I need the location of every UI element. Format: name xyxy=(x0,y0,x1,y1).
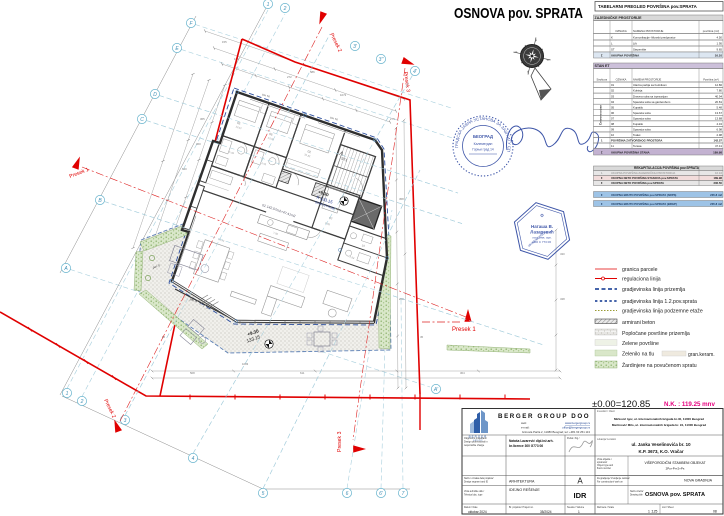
svg-text:C: C xyxy=(140,117,144,123)
svg-text:Spavaća soba: Spavaća soba xyxy=(633,116,651,120)
svg-text:gradjevinska linija prizemlja: gradjevinska linija prizemlja xyxy=(622,287,685,293)
svg-text:16.10: 16.10 xyxy=(715,171,722,175)
svg-text:IDEJNO REŠENJE: IDEJNO REŠENJE xyxy=(509,487,540,492)
svg-text:POVRŠINA ZATVORENOG PROSTORA: POVRŠINA ZATVORENOG PROSTORA xyxy=(611,138,662,143)
svg-text:01: 01 xyxy=(611,83,615,87)
svg-text:13.67: 13.67 xyxy=(715,111,722,115)
svg-text:UKUPNA POVRŠINA ZAJEDNIČKIH PR: UKUPNA POVRŠINA ZAJEDNIČKIH PROSTORIJA xyxy=(611,170,675,175)
svg-text:Naziv crteža/: Naziv crteža/ xyxy=(630,490,644,493)
svg-text:1: 1 xyxy=(66,391,69,397)
svg-text:REKAPITULACIJA POVRŠINA pov.SP: REKAPITULACIJA POVRŠINA pov.SPRATA xyxy=(634,165,700,170)
svg-text:Struktura: Struktura xyxy=(596,78,607,82)
svg-text:640: 640 xyxy=(182,167,187,171)
svg-text:1.95: 1.95 xyxy=(717,42,723,46)
svg-text:Četvorosoban: Četvorosoban xyxy=(598,105,603,125)
svg-text:A: A xyxy=(63,266,68,272)
svg-text:Spavaća soba: Spavaća soba xyxy=(633,128,651,132)
svg-text:6: 6 xyxy=(346,491,349,497)
svg-text:Pečat i žig /: Pečat i žig / xyxy=(567,437,580,440)
svg-text:1: 1 xyxy=(578,510,580,514)
svg-text:oktobar 2024: oktobar 2024 xyxy=(468,510,487,514)
svg-text:508: 508 xyxy=(190,371,195,375)
svg-text:ST: ST xyxy=(611,48,615,52)
svg-text:UKUPNA BRUTO POVRŠINA pov.SPRA: UKUPNA BRUTO POVRŠINA pov.SPRATA (BRGP) xyxy=(611,201,677,206)
svg-text:04: 04 xyxy=(611,100,615,104)
svg-text:Presek 3: Presek 3 xyxy=(337,431,343,452)
svg-text:2.98: 2.98 xyxy=(717,133,723,137)
svg-text:7: 7 xyxy=(402,491,405,497)
svg-text:09: 09 xyxy=(611,128,615,132)
svg-text:Vrsta objekta i: Vrsta objekta i xyxy=(597,458,612,461)
svg-text:Kupatilo: Kupatilo xyxy=(633,105,644,109)
svg-text:NAMENA PROSTORIJE: NAMENA PROSTORIJE xyxy=(633,78,661,82)
svg-text:ARHITEKTURA: ARHITEKTURA xyxy=(509,480,535,484)
svg-text:Nataša Lazarević dipl.inž.ar: Nataša Lazarević dipl.inž.arh. xyxy=(509,439,554,443)
svg-text:ZAJEDNIČKE PROSTORIJE: ZAJEDNIČKE PROSTORIJE xyxy=(595,15,643,20)
svg-text:OZNAKA: OZNAKA xyxy=(616,78,627,82)
svg-text:Komunikacije -liftovski predpr: Komunikacije -liftovski predprostor xyxy=(633,36,676,40)
svg-text:regulaciona linija: regulaciona linija xyxy=(622,277,661,283)
svg-text:10: 10 xyxy=(611,133,615,137)
svg-text:spratnost/: spratnost/ xyxy=(597,461,607,464)
svg-text:granica parcele: granica parcele xyxy=(622,267,658,273)
svg-text:Sveska / Volume: Sveska / Volume xyxy=(567,507,585,509)
svg-text:35/2024: 35/2024 xyxy=(540,510,552,514)
svg-text:11: 11 xyxy=(611,144,614,148)
svg-text:Калемегдан: Калемегдан xyxy=(474,142,493,146)
svg-text:UKUPNA POVRŠINA STANA: UKUPNA POVRŠINA STANA xyxy=(611,150,651,155)
svg-text:189.98: 189.98 xyxy=(713,151,722,155)
svg-text:1: 1 xyxy=(601,139,603,143)
svg-text:БЕОГРАД: БЕОГРАД xyxy=(473,134,493,139)
svg-text:07: 07 xyxy=(611,116,615,120)
svg-text:Površina (m²): Površina (m²) xyxy=(703,78,719,82)
svg-text:9.65: 9.65 xyxy=(717,48,723,52)
svg-text:UKUPNA NETO POVRŠINA STANOVA p: UKUPNA NETO POVRŠINA STANOVA pov.SPRATA xyxy=(611,175,678,180)
svg-text:Ulazna partija sa hodnikom: Ulazna partija sa hodnikom xyxy=(633,83,667,87)
svg-text:UKUPNA BRUTO POVRŠINA pov.SPRA: UKUPNA BRUTO POVRŠINA pov.SPRATA (SRPS) xyxy=(611,192,676,197)
svg-text:Presek 2: Presek 2 xyxy=(102,398,116,419)
svg-text:površina (m²): površina (m²) xyxy=(703,29,720,33)
svg-text:365: 365 xyxy=(200,117,205,121)
svg-text:12.80: 12.80 xyxy=(715,83,722,87)
svg-text:08: 08 xyxy=(713,510,717,514)
svg-text:BERGER GROUP DOO: BERGER GROUP DOO xyxy=(498,413,590,420)
svg-text:Žardinjere na povučenom spratu: Žardinjere na povučenom spratu xyxy=(622,361,697,369)
svg-text:Dnevna soba sa trpezarijom: Dnevna soba sa trpezarijom xyxy=(633,94,668,98)
svg-text:OZNAKA: OZNAKA xyxy=(615,29,627,33)
svg-text:Investitor / Client: Investitor / Client xyxy=(597,410,615,413)
svg-text:2Po+Pr+2+Ps: 2Po+Pr+2+Ps xyxy=(666,467,685,471)
svg-text:Br. projekta / Project no.: Br. projekta / Project no. xyxy=(509,506,534,509)
svg-text:1 :125: 1 :125 xyxy=(648,510,658,514)
svg-text:Presek 2: Presek 2 xyxy=(328,32,342,53)
svg-text:⚙: ⚙ xyxy=(540,213,545,218)
svg-text:02: 02 xyxy=(611,89,615,93)
svg-text:IDR: IDR xyxy=(574,491,588,500)
svg-text:Presek 1: Presek 1 xyxy=(452,327,476,333)
svg-text:5: 5 xyxy=(262,491,265,497)
svg-text:Tehnical doc. type: Tehnical doc. type xyxy=(464,494,483,497)
svg-text:438: 438 xyxy=(560,297,565,301)
svg-text:www.bergergroup.rs: www.bergergroup.rs xyxy=(565,421,591,425)
svg-text:235.8 m2: 235.8 m2 xyxy=(710,193,722,197)
svg-text:Popločane površine prizemlja: Popločane površine prizemlja xyxy=(622,331,690,337)
svg-text:45: 45 xyxy=(420,335,424,339)
svg-text:6.98: 6.98 xyxy=(717,128,723,132)
svg-text:Zelene površine: Zelene površine xyxy=(622,341,659,347)
svg-text:Naziv i oznaka dela projekta/: Naziv i oznaka dela projekta/ xyxy=(464,477,494,480)
svg-text:List / Sheet: List / Sheet xyxy=(662,506,674,509)
svg-text:Stepenište: Stepenište xyxy=(633,48,647,52)
svg-text:1072: 1072 xyxy=(340,93,347,97)
svg-text:gradjevinska linija 1.2.pov.sp: gradjevinska linija 1.2.pov.sprata xyxy=(622,299,697,305)
svg-text:Object type and: Object type and xyxy=(597,464,614,467)
svg-text:3: 3 xyxy=(124,418,127,424)
svg-text:611: 611 xyxy=(300,371,305,375)
svg-text:155: 155 xyxy=(222,40,227,44)
svg-text:Terasa: Terasa xyxy=(633,144,642,148)
svg-text:responsible charge: responsible charge xyxy=(464,444,485,447)
svg-text:586: 586 xyxy=(310,70,315,74)
svg-text:4: 4 xyxy=(192,456,195,462)
svg-text:office@bergergroup.rs: office@bergergroup.rs xyxy=(562,426,590,430)
svg-text:Mirković Igor, ul. Internacion: Mirković Igor, ul. Internacionalnih brig… xyxy=(614,417,704,421)
svg-text:235.8 m2: 235.8 m2 xyxy=(710,202,722,206)
svg-text:2: 2 xyxy=(80,399,84,405)
svg-text:Spavaća soba: Spavaća soba xyxy=(633,111,651,115)
svg-text:Kuhinja: Kuhinja xyxy=(633,89,643,93)
svg-text:142.57: 142.57 xyxy=(713,139,722,143)
svg-text:Martinović Milo, ul. internaci: Martinović Milo, ul. internacionalnih br… xyxy=(612,423,706,427)
svg-text:Datum / Date: Datum / Date xyxy=(464,506,478,509)
svg-text:web:: web: xyxy=(521,421,527,425)
svg-text:05: 05 xyxy=(611,105,615,109)
svg-text:360: 360 xyxy=(196,142,201,146)
svg-text:Lokacija/ Location: Lokacija/ Location xyxy=(597,438,617,441)
svg-text:206.50: 206.50 xyxy=(713,181,722,185)
svg-text:7.80: 7.80 xyxy=(717,89,723,93)
svg-text:D: D xyxy=(153,92,157,98)
svg-text:20.81: 20.81 xyxy=(715,100,722,104)
svg-text:UKUPNA POVRŠINA: UKUPNA POVRŠINA xyxy=(611,53,640,58)
svg-text:Zelenilo na tlu: Zelenilo na tlu xyxy=(622,352,654,358)
svg-text:Toalet: Toalet xyxy=(633,133,641,137)
svg-text:4.50: 4.50 xyxy=(717,36,723,40)
svg-text:Vrsta tehničke dok./: Vrsta tehničke dok./ xyxy=(464,490,484,493)
svg-text:par. 50: par. 50 xyxy=(262,92,271,99)
svg-text:272: 272 xyxy=(287,75,292,79)
svg-text:K: K xyxy=(611,36,613,40)
svg-text:N.K. : 119.25 mnv: N.K. : 119.25 mnv xyxy=(664,401,715,408)
svg-text:430: 430 xyxy=(560,252,565,256)
svg-text:STAN ET: STAN ET xyxy=(595,64,611,68)
svg-text:Lift: Lift xyxy=(633,42,637,46)
svg-text:1: 1 xyxy=(267,2,270,8)
svg-text:A: A xyxy=(577,477,583,486)
svg-text:par. 50: par. 50 xyxy=(330,115,339,122)
svg-text:br.licence 300 G773 06: br.licence 300 G773 06 xyxy=(509,444,543,448)
svg-text:16.10: 16.10 xyxy=(715,54,723,58)
svg-text:armirani beton: armirani beton xyxy=(622,320,655,326)
svg-text:Наташа В.: Наташа В. xyxy=(531,224,553,229)
svg-text:458: 458 xyxy=(399,197,404,201)
svg-text:03: 03 xyxy=(611,94,615,98)
svg-text:floors number: floors number xyxy=(597,467,611,470)
svg-text:47.41: 47.41 xyxy=(715,144,722,148)
svg-text:Grincela Parila 2, 11080 Beogr: Grincela Parila 2, 11080 Beograd; tel: +… xyxy=(522,430,591,434)
svg-text:e-mail:: e-mail: xyxy=(521,426,530,430)
svg-text:gradjevinska linija podzemne e: gradjevinska linija podzemne etaže xyxy=(622,309,703,315)
svg-text:1083: 1083 xyxy=(242,362,249,366)
svg-text:189.98: 189.98 xyxy=(713,176,722,180)
svg-text:OSNOVA pov. SPRATA: OSNOVA pov. SPRATA xyxy=(645,492,705,498)
svg-text:Razmera / Scale: Razmera / Scale xyxy=(597,506,615,509)
svg-text:Design segment and ID: Design segment and ID xyxy=(464,481,488,484)
svg-text:For construction/ work on: For construction/ work on xyxy=(597,481,624,484)
svg-text:gran.keram.: gran.keram. xyxy=(688,352,715,358)
svg-text:275: 275 xyxy=(390,117,395,121)
svg-text:06: 06 xyxy=(611,111,615,115)
svg-text:L: L xyxy=(611,42,613,46)
svg-text:VIŠEPORODIČNI STAMBENI OBJEKAT: VIŠEPORODIČNI STAMBENI OBJEKAT xyxy=(644,460,705,465)
svg-text:Σ: Σ xyxy=(601,151,603,155)
svg-text:2: 2 xyxy=(283,6,287,12)
svg-text:40.94: 40.94 xyxy=(715,94,722,98)
svg-text:TABELARNI PREGLED POVRŠINA pov: TABELARNI PREGLED POVRŠINA pov.SPRATA xyxy=(598,4,698,9)
svg-text:Za gradjenje/ izvodjenje radov: Za gradjenje/ izvodjenje radova/ xyxy=(597,477,630,480)
svg-text:Presek 3: Presek 3 xyxy=(402,71,411,92)
svg-text:UKUPNA NETO POVRŠINA pov.SPRAT: UKUPNA NETO POVRŠINA pov.SPRATA xyxy=(611,180,664,185)
svg-text:OSNOVA pov. SPRATA: OSNOVA pov. SPRATA xyxy=(454,6,583,22)
svg-text:Σ: Σ xyxy=(601,54,603,58)
svg-text:Spavaća soba sa garderobom: Spavaća soba sa garderobom xyxy=(633,100,671,104)
svg-text:NAMENA PROSTORIJE: NAMENA PROSTORIJE xyxy=(633,29,664,33)
svg-text:4.43: 4.43 xyxy=(717,122,723,126)
svg-text:ul. Janka Veselinovića br. 10: ul. Janka Veselinovića br. 10 xyxy=(631,442,691,447)
svg-text:304: 304 xyxy=(460,371,465,375)
svg-text:K.P. 3673, K.O. Vračar: K.P. 3673, K.O. Vračar xyxy=(638,449,683,454)
svg-text:NOVA GRADNJA: NOVA GRADNJA xyxy=(684,479,712,483)
svg-text:Горњи град 14: Горњи град 14 xyxy=(472,148,494,152)
svg-text:08: 08 xyxy=(611,122,615,126)
svg-text:Drawing title: Drawing title xyxy=(630,494,643,497)
svg-text:Kupatilo: Kupatilo xyxy=(633,122,644,126)
svg-text:13.88: 13.88 xyxy=(715,116,722,120)
svg-text:5.48: 5.48 xyxy=(717,105,723,109)
